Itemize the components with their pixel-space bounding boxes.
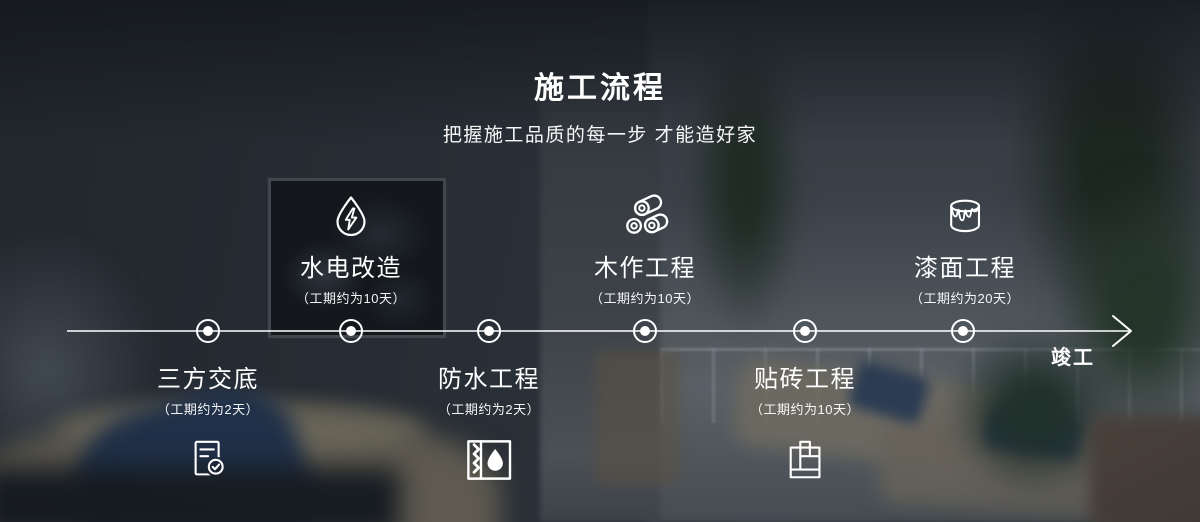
step-title: 贴砖工程 [754,365,856,395]
step-title: 水电改造 [300,254,402,284]
page-subtitle: 把握施工品质的每一步 才能造好家 [0,120,1200,147]
page-title: 施工流程 [0,72,1200,105]
paint-bucket-icon [944,194,986,240]
step-title: 防水工程 [438,365,540,395]
step-tiling: 贴砖工程 （工期约为10天） [690,365,920,483]
finish-label: 竣工 [1051,341,1095,370]
wood-logs-icon [621,194,669,240]
timeline-node [196,319,220,343]
timeline-node [951,319,975,343]
timeline-node-dot [346,326,356,336]
timeline-node-dot [800,326,810,336]
step-briefing: 三方交底 （工期约为2天） [93,365,323,483]
step-duration: （工期约为10天） [296,290,406,308]
step-duration: （工期约为20天） [910,290,1020,308]
tiles-icon [784,437,826,483]
water-electric-icon [331,194,371,240]
construction-process-section: 施工流程 把握施工品质的每一步 才能造好家 竣工 三方交底 （工期约为2天） 水… [0,0,1200,522]
timeline-node-dot [958,326,968,336]
step-title: 木作工程 [594,254,696,284]
timeline-node-dot [203,326,213,336]
step-duration: （工期约为10天） [750,401,860,419]
timeline-node [633,319,657,343]
step-title: 漆面工程 [914,254,1016,284]
timeline-node [477,319,501,343]
step-duration: （工期约为2天） [157,401,259,419]
step-waterproofing: 防水工程 （工期约为2天） [374,365,604,483]
step-title: 三方交底 [157,365,259,395]
document-check-icon [187,437,229,483]
step-painting: 漆面工程 （工期约为20天） [850,194,1080,308]
step-duration: （工期约为10天） [590,290,700,308]
timeline-node-dot [484,326,494,336]
timeline-node [339,319,363,343]
step-water-electric: 水电改造 （工期约为10天） [236,194,466,308]
waterproof-wall-icon [464,437,514,483]
timeline-node-dot [640,326,650,336]
step-woodwork: 木作工程 （工期约为10天） [530,194,760,308]
timeline-node [793,319,817,343]
section-header: 施工流程 把握施工品质的每一步 才能造好家 [0,72,1200,147]
step-duration: （工期约为2天） [438,401,540,419]
